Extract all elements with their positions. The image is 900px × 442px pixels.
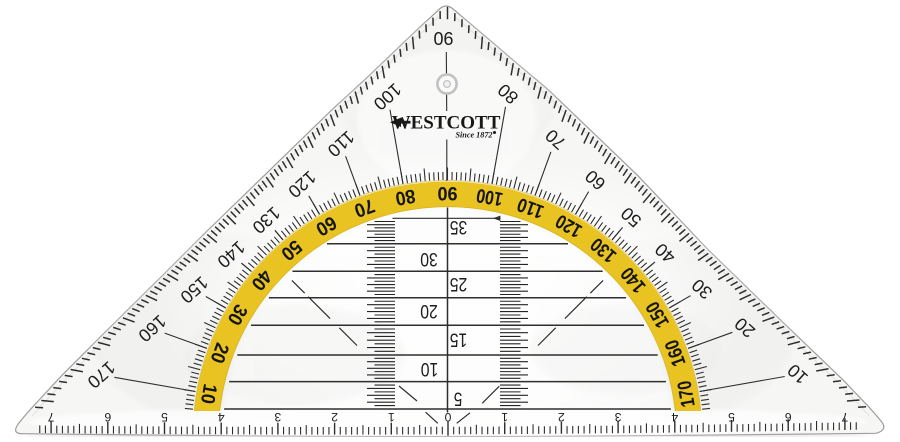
svg-text:20: 20 xyxy=(420,300,438,321)
svg-text:Since 1872: Since 1872 xyxy=(455,131,492,140)
svg-text:170: 170 xyxy=(673,379,699,409)
svg-text:7: 7 xyxy=(47,410,54,424)
svg-text:2: 2 xyxy=(558,410,565,424)
svg-text:35: 35 xyxy=(450,216,468,237)
svg-text:100: 100 xyxy=(475,184,505,210)
svg-text:5: 5 xyxy=(161,410,168,424)
svg-text:10: 10 xyxy=(196,382,221,406)
svg-text:1: 1 xyxy=(501,410,508,424)
svg-text:30: 30 xyxy=(420,248,438,269)
svg-text:90: 90 xyxy=(437,182,457,204)
svg-text:5: 5 xyxy=(728,410,735,424)
svg-text:3: 3 xyxy=(614,410,621,424)
svg-text:2: 2 xyxy=(331,410,338,424)
svg-text:5: 5 xyxy=(454,387,463,408)
svg-text:7: 7 xyxy=(841,410,848,424)
svg-text:3: 3 xyxy=(274,410,281,424)
svg-text:0: 0 xyxy=(444,410,451,424)
svg-text:80: 80 xyxy=(393,184,417,209)
svg-text:6: 6 xyxy=(104,410,111,424)
svg-text:4: 4 xyxy=(671,410,678,424)
svg-text:15: 15 xyxy=(450,329,468,350)
svg-text:25: 25 xyxy=(450,273,468,294)
svg-text:6: 6 xyxy=(785,410,792,424)
svg-text:1: 1 xyxy=(388,410,395,424)
svg-text:90: 90 xyxy=(433,28,453,48)
svg-text:10: 10 xyxy=(421,358,439,379)
svg-text:4: 4 xyxy=(218,410,225,424)
